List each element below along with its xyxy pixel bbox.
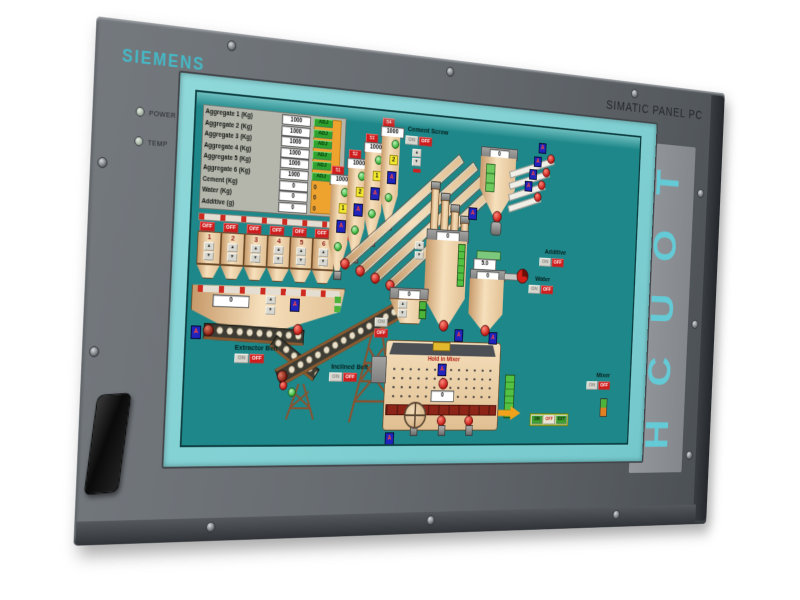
bin-funnel [243,266,267,281]
belt-drum [202,324,214,337]
mode-ext-button[interactable]: EXT [555,415,567,424]
valve-icon: A [524,181,532,192]
recipe-table: Aggregate 1 (Kg)1000ADJ Aggregate 2 (Kg)… [199,104,347,218]
status-square [419,310,427,319]
aggregate-bin-2: OFF2▲▼ [219,223,245,281]
valve-icon: A [336,220,346,234]
mixer-indicator [433,342,451,351]
water-on-button[interactable]: ON [528,285,540,294]
additive-outlet [490,221,501,236]
discharge-valve [439,320,449,332]
additive-off-button[interactable]: OFF [551,258,564,267]
down-button[interactable]: ▼ [265,306,275,315]
silo-outlet [333,271,341,281]
water-label: Water [527,274,557,283]
mixer-mode-strip: ON OFF EXT [529,413,568,426]
valve-icon: A [529,169,537,180]
discharge-chute [465,425,473,436]
adjust-button[interactable]: ADJ [312,161,331,171]
power-led-label: POWER [149,108,176,119]
bin-funnel [196,264,220,280]
aggregate-bin-3: OFF3▲▼ [243,224,268,281]
transfer-off-button[interactable]: OFF [374,328,388,338]
up-button[interactable]: ▲ [266,296,276,305]
mixer-off-button[interactable]: OFF [598,381,610,390]
valve-icon: A [468,207,477,220]
hopper-level-indicators [334,297,342,329]
up-button[interactable]: ▲ [251,244,261,253]
screw-motor [340,258,350,270]
down-button[interactable]: ▼ [398,309,407,317]
alarm-tick [413,169,421,173]
mixer-on-button[interactable]: ON [586,381,598,390]
water-off-button[interactable]: OFF [541,285,554,294]
mode-off-button[interactable]: OFF [543,415,555,424]
extractor-off-button[interactable]: OFF [249,354,264,364]
valve-icon: A [437,364,446,377]
downpipe [440,200,449,234]
valve-icon: A [454,329,463,342]
down-button[interactable]: ▼ [203,251,214,260]
status-lamp [385,193,393,203]
hmi-screen[interactable]: Aggregate 1 (Kg)1000ADJ Aggregate 2 (Kg)… [180,90,642,448]
down-button[interactable]: ▼ [412,158,421,167]
up-button[interactable]: ▲ [227,243,237,252]
temp-led-label: TEMP [148,138,168,149]
extractor-weight-display: 0 [212,294,249,308]
up-button[interactable]: ▲ [296,247,306,256]
inclined-on-button[interactable]: ON [329,372,343,381]
aggregate-bin-4: OFF4▲▼ [266,226,291,283]
outlet-number: 2 [389,155,398,166]
additive-label: Additive [537,247,574,257]
water-tank-body [468,278,504,330]
status-lamp [391,139,399,149]
valve-icon: A [488,332,497,345]
down-button[interactable]: ▼ [414,251,423,260]
mixer-weight-display: 0 [430,390,454,402]
adjust-button[interactable]: ADJ [311,172,330,182]
up-button[interactable]: ▲ [412,149,421,158]
valve-icon: A [385,432,395,445]
down-button[interactable]: ▼ [227,253,237,262]
inclined-off-button[interactable]: OFF [343,373,357,382]
extractor-on-button[interactable]: ON [234,353,249,363]
cement-screw-on-button[interactable]: ON [405,135,418,145]
up-button[interactable]: ▲ [318,248,328,257]
mode-on-button[interactable]: ON [531,415,543,425]
mixer-drum: Hold in Mixer A 0 [382,340,501,431]
weight-display: 0 [278,201,307,213]
screw-motor [355,265,365,276]
status-lamp [334,242,342,252]
valve-icon: A [534,156,542,167]
valve-icon: A [387,171,397,184]
mixer-state-indicator [599,398,607,417]
bin-funnel [289,268,312,283]
mixer-lower-band [385,404,496,415]
valve-icon: A [190,325,201,339]
bin-funnel [266,267,289,282]
mixer-motor [371,356,387,384]
additive-on-button[interactable]: ON [539,258,551,267]
down-button[interactable]: ▼ [318,258,328,267]
valve-icon: A [290,298,300,311]
down-button[interactable]: ▼ [250,254,260,263]
power-led [136,106,145,117]
adjust-button[interactable]: ADJ [314,118,333,128]
outlet-number: 1 [372,171,381,182]
discharge-chute [438,425,446,436]
bin-funnel [311,269,334,284]
panel-pc: SIEMENS SIMATIC PANEL PC POWER TEMP T O … [73,16,724,545]
down-button[interactable]: ▼ [296,256,306,265]
transfer-on-button[interactable]: ON [375,317,388,327]
extractor-belt-label: Extractor Belt [221,343,290,353]
up-button[interactable]: ▲ [204,242,215,251]
adjust-button[interactable]: ADJ [313,140,332,150]
valve-icon: A [353,203,363,217]
valve-icon: A [539,143,547,154]
adjust-button[interactable]: ADJ [312,151,331,161]
aggregate-bin-1: OFF1▲▼ [196,221,222,279]
outlet-number: 2 [356,187,365,198]
status-square [419,301,427,310]
down-button[interactable]: ▼ [273,255,283,264]
status-lamp [368,209,376,219]
cement-screw-off-button[interactable]: OFF [419,137,433,147]
aggregate-bin-5: OFF5▲▼ [289,227,314,283]
bin-funnel [219,265,243,280]
screw-motor [370,272,380,283]
up-button[interactable]: ▲ [274,246,284,255]
level-indicator [485,163,495,192]
mixer-label: Mixer [587,371,620,379]
adjust-button[interactable]: ADJ [313,129,332,139]
temp-led [134,136,143,147]
up-button[interactable]: ▲ [415,241,424,250]
up-button[interactable]: ▲ [398,300,407,309]
valve-icon: A [370,187,380,200]
status-lamp [351,225,359,235]
